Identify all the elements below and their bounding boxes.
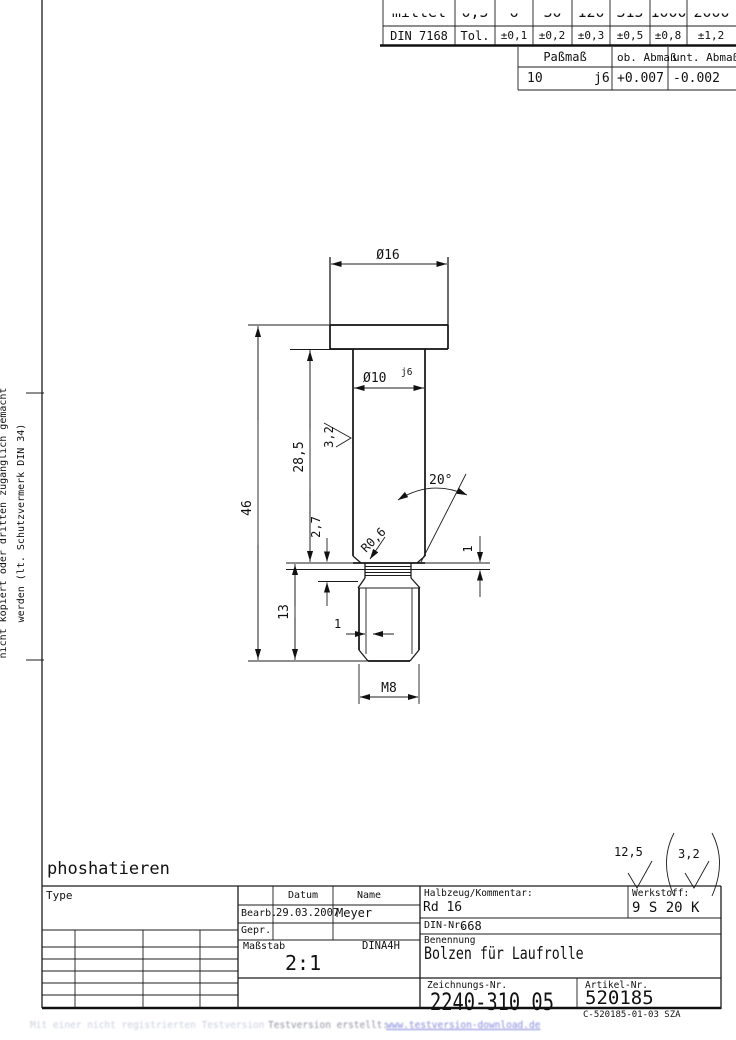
fit-class: j6	[594, 72, 610, 85]
dim-undercut	[318, 538, 358, 606]
scale-value: 2:1	[285, 953, 321, 973]
finish-fine-roughness: 3,2	[678, 847, 700, 861]
dim-text-thread-length: 13	[277, 604, 292, 620]
fit-lower: -0.002	[673, 72, 720, 85]
dim-text-shaft-length: 28,5	[292, 441, 307, 472]
dim-text-runout: 1	[334, 617, 341, 631]
artikel-value: 520185	[585, 989, 654, 1008]
tol-clipped-cell: 6	[495, 1, 533, 25]
werkstoff-label: Werkstoff:	[632, 889, 689, 899]
dim-text-seat-angle: 20°	[429, 473, 452, 488]
linework-layer: Ø16 Ø10 j6 46 28,5 2,7 13 20° R0,6 M8 1 …	[0, 0, 736, 1040]
dim-text-thread: M8	[381, 681, 397, 696]
dim-text-flange: 1	[461, 545, 475, 552]
sheet-format: DINA4H	[362, 941, 400, 952]
name-header: Name	[357, 891, 381, 901]
finish-treatment: phoshatieren	[47, 861, 170, 878]
watermark-left: Mit einer nicht registrierten Testversio…	[30, 1021, 265, 1031]
fit-upper: +0.007	[617, 72, 664, 85]
tol-clipped-cell: 120	[572, 1, 610, 25]
copyright-note-line1: nicht kopiert oder dritten zugänglich ge…	[0, 382, 9, 664]
tol-clipped-cell: 30	[533, 1, 572, 25]
dim-text-fillet-radius: R0,6	[358, 525, 388, 555]
fit-size: 10	[527, 72, 543, 85]
gepr-label: Gepr.	[241, 926, 271, 936]
tol-standard: DIN 7168	[390, 30, 448, 42]
tol-clipped-cell: 315	[610, 1, 650, 25]
benennung-value: Bolzen für Laufrolle	[424, 946, 584, 963]
dim-text-total-length: 46	[240, 500, 255, 516]
bearb-name: Meyer	[336, 907, 372, 919]
fit-col-upper: ob. Abmaß	[617, 52, 677, 63]
massstab-label: Maßstab	[243, 942, 285, 952]
bolt-head-outline	[330, 257, 448, 349]
tol-clipped-cell: 2000	[687, 1, 736, 25]
copyright-note-line2: werden (lt. Schutzvermerk DIN 34)	[17, 382, 27, 664]
watermark-link[interactable]: www.testversion-download.de	[386, 1021, 540, 1031]
dim-text-shaft-roughness: 3,2	[322, 426, 336, 448]
bolt-neck-outline	[286, 563, 490, 588]
dim-text-shaft-fit: j6	[401, 367, 413, 378]
tol-value: ±0,3	[578, 30, 605, 41]
werkstoff-value: 9 S 20 K	[632, 901, 699, 915]
tol-clipped-cell: mittel	[383, 1, 455, 25]
finish-general-roughness: 12,5	[614, 845, 643, 859]
tol-value: ±0,5	[617, 30, 644, 41]
tol-value: ±0,2	[539, 30, 566, 41]
halbzeug-label: Halbzeug/Kommentar:	[424, 889, 533, 899]
watermark-mid: Testversion erstellt:	[268, 1021, 388, 1031]
bearb-date: 29.03.2007	[276, 908, 339, 919]
dim-text-head-dia: Ø16	[376, 248, 399, 263]
fit-col-lower: unt. Abmaß	[673, 52, 736, 63]
tol-clipped-cell: 0,5	[455, 1, 495, 25]
type-label: Type	[46, 890, 73, 901]
din-value: 668	[460, 920, 482, 932]
tol-value: ±0,8	[655, 30, 682, 41]
datum-header: Datum	[288, 891, 318, 901]
roughness-symbol-general	[628, 861, 652, 888]
bearb-label: Bearb.	[241, 909, 277, 919]
halbzeug-value: Rd 16	[423, 901, 462, 914]
dim-text-undercut: 2,7	[309, 516, 323, 538]
tol-label: Tol.	[461, 30, 490, 42]
drawing-sheet: Ø16 Ø10 j6 46 28,5 2,7 13 20° R0,6 M8 1 …	[0, 0, 736, 1040]
doc-code: C-520185-01-03 SZA	[583, 1011, 681, 1020]
tol-value: ±1,2	[698, 30, 725, 41]
tol-clipped-cell: 1000	[650, 1, 687, 25]
zeichnung-value: 2240-310 05	[430, 990, 554, 1014]
tol-value: ±0,1	[501, 30, 528, 41]
fit-col-pass: Paßmaß	[543, 51, 586, 63]
dim-text-shaft-dia: Ø10	[363, 371, 386, 386]
